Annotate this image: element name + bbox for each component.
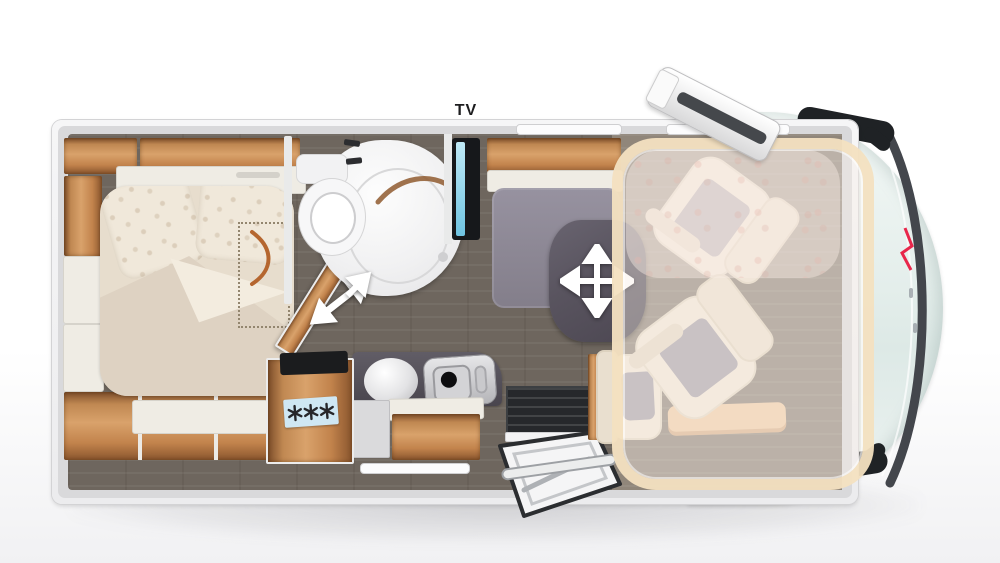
tv-screen-glow [456, 142, 465, 236]
side-mirror [658, 60, 808, 150]
mirror-cap [644, 68, 680, 110]
mirror-housing [644, 64, 783, 164]
window [360, 463, 470, 474]
drainboard [474, 365, 488, 394]
tv-wall [444, 134, 452, 244]
kitchen-side-cabinet [348, 400, 390, 458]
dropdown-bed-frame [612, 138, 874, 490]
hanger-arc-icon [246, 226, 276, 288]
stove-lid [364, 358, 418, 404]
mirror-glass [675, 91, 768, 146]
rear-cabinet [64, 176, 102, 256]
wardrobe-door [63, 324, 104, 392]
toilet-bowl [310, 192, 356, 244]
bed-foot-shelf [132, 400, 268, 434]
window [516, 124, 622, 135]
fridge-top [280, 351, 349, 375]
kitchen-base-cabinet [392, 414, 480, 460]
snowflake-icons [286, 400, 335, 423]
bathroom-wall [284, 136, 292, 304]
shower-drain [438, 252, 448, 262]
tv-screen [452, 138, 480, 240]
dinette-overhead-cabinet [487, 138, 621, 174]
shelf-handle [236, 172, 280, 178]
fridge-label [283, 396, 339, 428]
wardrobe-door [63, 256, 104, 324]
motorhome-floorplan: TV [0, 0, 1000, 563]
northeast-arrow-icon[interactable] [338, 270, 374, 304]
tv-label: TV [444, 102, 488, 124]
